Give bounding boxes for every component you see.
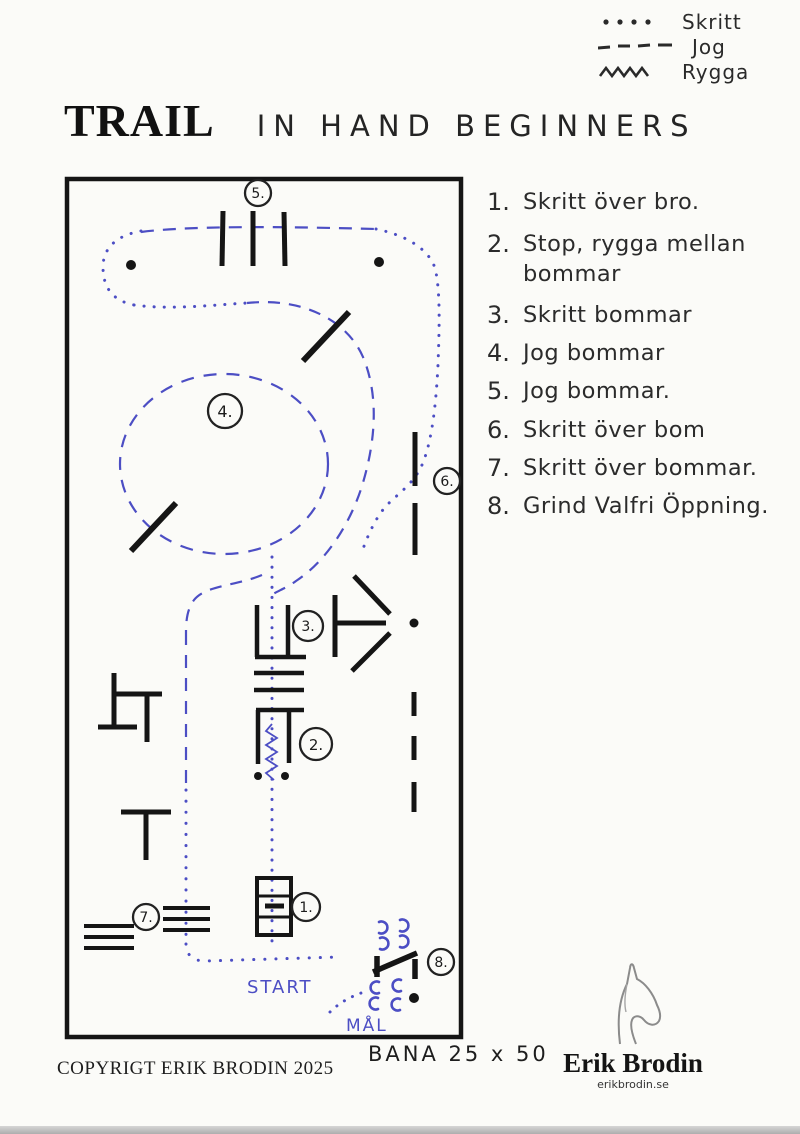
svg-text:1.: 1. [299, 900, 312, 916]
obstacle-label-8: 8. [428, 949, 454, 975]
walk-path-bottom [186, 944, 338, 961]
diagonal-pole-left [131, 503, 176, 551]
jog-path-top [141, 227, 376, 232]
goal-label: MÅL [346, 1014, 388, 1036]
instruction-text: Grind Valfri Öppning. [523, 492, 769, 521]
svg-text:2.: 2. [309, 736, 323, 754]
zigzag-line-icon [598, 64, 682, 80]
walk-path-right [363, 229, 439, 549]
walk-path-goal [330, 992, 364, 1012]
instruction-item: 5. Jog bommar. [487, 377, 787, 406]
svg-text:3.: 3. [301, 619, 314, 635]
obstacle-label-5: 5. [245, 180, 271, 206]
instruction-text: Jog bommar [523, 339, 665, 368]
instruction-number: 4. [487, 339, 523, 368]
svg-text:7.: 7. [139, 910, 152, 926]
legend-label: Rygga [682, 60, 749, 84]
start-label: START [247, 977, 313, 998]
corner-poles [98, 673, 162, 742]
gait-legend: Skritt Jog Rygga [598, 10, 798, 85]
dotted-line-icon [598, 16, 682, 28]
diagonal-pole-top [303, 312, 349, 361]
jog-path-connector [186, 575, 262, 632]
instruction-item: 4. Jog bommar [487, 339, 787, 368]
t-poles [121, 812, 171, 860]
instruction-item: 8. Grind Valfri Öppning. [487, 492, 787, 521]
obstacle-8-gate [373, 953, 417, 979]
instruction-number: 3. [487, 301, 523, 330]
funnel-poles [335, 576, 390, 671]
instruction-item: 2. Stop, rygga mellan bommar [487, 230, 787, 289]
arena-border [67, 179, 461, 1037]
legend-label: Skritt [682, 10, 742, 34]
instruction-number: 1. [487, 188, 523, 217]
arena-size-note: BANA 25 x 50 [368, 1042, 549, 1066]
obstacle-label-3: 3. [293, 611, 323, 641]
svg-text:4.: 4. [217, 402, 232, 421]
scan-edge [0, 1126, 800, 1134]
horse-head-icon [596, 958, 670, 1046]
svg-text:6.: 6. [440, 474, 453, 490]
obstacles [84, 211, 419, 1003]
instruction-list: 1. Skritt över bro. 2. Stop, rygga mella… [487, 188, 787, 530]
instruction-text: Skritt över bro. [523, 188, 700, 217]
instruction-text: Skritt över bom [523, 416, 705, 445]
jog-path-descent [247, 302, 374, 594]
page-subtitle: IN HAND BEGINNERS [257, 109, 697, 143]
instruction-number: 6. [487, 416, 523, 445]
obstacle-5-poles [222, 211, 285, 266]
instruction-number: 8. [487, 492, 523, 521]
legend-row-skritt: Skritt [598, 10, 798, 34]
instruction-number: 2. [487, 230, 523, 289]
copyright-text: COPYRIGT ERIK BRODIN 2025 [57, 1058, 334, 1080]
rygga-zigzag-icon [266, 724, 277, 780]
obstacle-label-7: 7. [133, 904, 159, 930]
svg-text:8.: 8. [434, 955, 447, 971]
logo-name: Erik Brodin [548, 1050, 718, 1077]
instruction-number: 5. [487, 377, 523, 406]
title-row: TRAIL IN HAND BEGINNERS [64, 94, 697, 147]
svg-text:5.: 5. [251, 186, 264, 202]
dashed-line-icon [598, 42, 682, 52]
obstacle-label-2: 2. [300, 728, 332, 760]
legend-label: Jog [692, 35, 726, 59]
obstacle-label-4: 4. [208, 394, 242, 428]
walk-path-top-left [103, 231, 141, 305]
obstacle-labels: 5. 4. 6. 3. 2. 7. 1. 8. [133, 180, 460, 975]
instruction-text: Jog bommar. [523, 377, 670, 406]
instruction-item: 3. Skritt bommar [487, 301, 787, 330]
instruction-text: Skritt bommar [523, 301, 692, 330]
page-title: TRAIL [64, 94, 215, 147]
instruction-text: Stop, rygga mellan bommar [523, 230, 787, 289]
instruction-item: 6. Skritt över bom [487, 416, 787, 445]
walk-path-top-lower [134, 303, 247, 307]
legend-row-jog: Jog [598, 35, 798, 59]
logo-website: erikbrodin.se [548, 1078, 718, 1091]
obstacle-label-1: 1. [292, 893, 320, 921]
instruction-item: 7. Skritt över bommar. [487, 454, 787, 483]
legend-row-rygga: Rygga [598, 60, 798, 84]
obstacle-label-6: 6. [434, 468, 460, 494]
obstacle-1-bridge [257, 878, 291, 935]
course-paths [103, 227, 439, 1012]
instruction-item: 1. Skritt över bro. [487, 188, 787, 217]
instruction-number: 7. [487, 454, 523, 483]
erik-brodin-logo: Erik Brodin erikbrodin.se [548, 958, 718, 1091]
obstacle-2-poles [256, 710, 304, 764]
instruction-text: Skritt över bommar. [523, 454, 757, 483]
